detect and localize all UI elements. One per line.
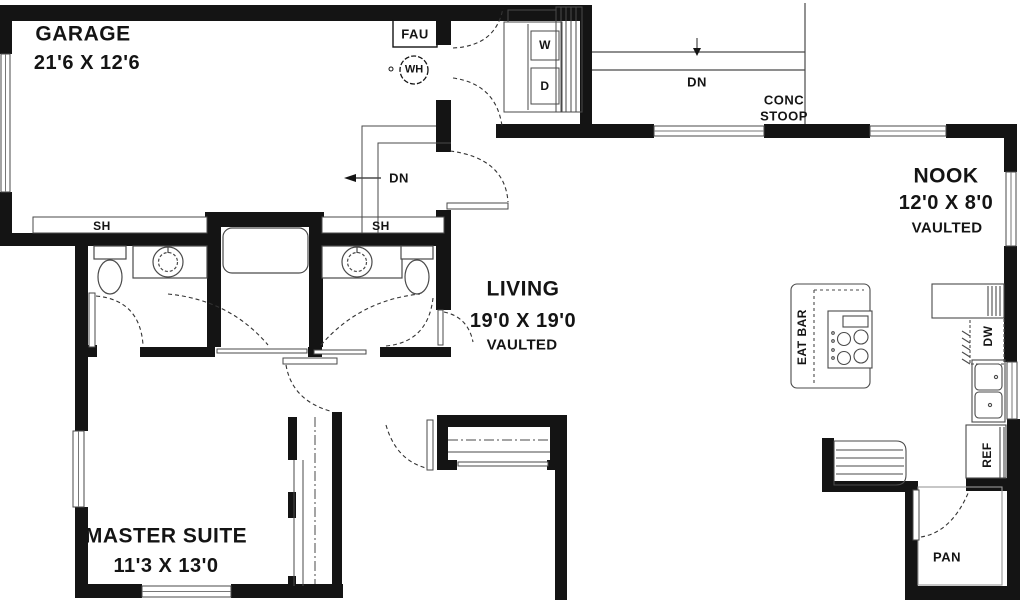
- wall-garage-east-1: [436, 5, 451, 45]
- wall-closet-master-stub1: [288, 417, 297, 460]
- wall-pantry-bottom: [905, 586, 1020, 600]
- living-dims-label: 19'0 X 19'0: [470, 311, 576, 331]
- wh-label: WH: [405, 65, 423, 76]
- eat-bar-label: EAT BAR: [796, 309, 808, 365]
- stoop-dn-label: DN: [687, 76, 707, 89]
- door-swing-bath-center-right: [321, 294, 420, 345]
- master-name-label: MASTER SUITE: [85, 526, 247, 547]
- wall-master-south-2: [231, 584, 343, 598]
- floor-plan: GARAGE 21'6 X 12'6 FAU WH DN W D DN CONC…: [0, 0, 1024, 600]
- door-leaf-garage-living: [447, 203, 508, 209]
- door-swing-bath-left: [96, 296, 143, 345]
- dryer-label: D: [540, 80, 549, 92]
- stoop-label: STOOP: [760, 110, 808, 123]
- wall-tub-left: [207, 212, 221, 347]
- pantry-interior: [918, 487, 1002, 585]
- wall-pantry-top: [966, 478, 1007, 491]
- door-swing-bath-right: [386, 298, 433, 346]
- garage-dn-arrowhead: [344, 174, 356, 182]
- wall-east-3: [1007, 419, 1020, 590]
- living-name-label: LIVING: [486, 279, 559, 300]
- kitchen: [791, 284, 1006, 585]
- door-swing-hall-living: [444, 312, 473, 342]
- door-leaf-bath-center-1: [217, 349, 307, 353]
- door-leaf-bath-center-2: [314, 350, 366, 354]
- wall-hall-4: [380, 347, 451, 357]
- door-swing-garage-hall-lower: [453, 78, 502, 126]
- wall-tub-right: [309, 212, 323, 347]
- sh-right-label: SH: [372, 220, 390, 232]
- shelf-left: [33, 217, 207, 233]
- wall-west-bath: [75, 236, 88, 347]
- wall-top: [8, 5, 592, 21]
- wall-closet-master-stub3: [288, 576, 296, 588]
- pan-label: PAN: [933, 551, 961, 564]
- living-note-label: VAULTED: [487, 338, 558, 353]
- toilet-right-bowl: [405, 260, 429, 294]
- master-dims-label: 11'3 X 13'0: [113, 556, 218, 576]
- wall-east-1: [1004, 131, 1017, 172]
- washer-label: W: [539, 39, 551, 51]
- wall-tub-top: [205, 212, 324, 227]
- toilet-left-tank: [94, 246, 126, 259]
- door-leaf-master: [283, 358, 337, 364]
- kitchen-sink-unit: [972, 360, 1005, 422]
- wall-garage-east-2: [436, 100, 451, 152]
- wall-closet-master-stub2: [288, 492, 296, 518]
- kitchen-peninsula: [834, 441, 906, 485]
- laundry-alcove: [504, 22, 562, 112]
- wall-closet2-top: [437, 415, 567, 427]
- wall-nook-north-1: [588, 124, 654, 138]
- door-swing-garage-living: [450, 151, 508, 202]
- door-swing-bed2: [386, 425, 426, 468]
- door-leaf-bed2: [427, 420, 433, 470]
- nook-note-label: VAULTED: [912, 221, 983, 236]
- fau-label: FAU: [401, 28, 429, 41]
- wall-closet-master-right: [332, 412, 342, 586]
- garage-dims-label: 21'6 X 12'6: [34, 53, 140, 73]
- wall-nook-north-2: [764, 124, 870, 138]
- garage-dn-label: DN: [389, 172, 409, 185]
- kitchen-upper-cabinet: [932, 284, 1004, 318]
- door-leaf-pantry: [913, 490, 919, 540]
- bathtub: [223, 228, 308, 273]
- wall-peninsula-stub: [822, 438, 834, 488]
- sh-left-label: SH: [93, 220, 111, 232]
- wall-hall-2: [140, 347, 215, 357]
- wall-east-2: [1004, 246, 1017, 362]
- wall-bed2-east: [555, 468, 567, 600]
- wall-master-south-1: [75, 584, 142, 598]
- door-leaf-hall-living: [438, 310, 443, 345]
- wh-gas-dot: [389, 67, 393, 71]
- basement-stairs: [556, 7, 582, 112]
- door-swing-master: [286, 365, 330, 411]
- toilet-right-tank: [401, 246, 433, 259]
- door-leaf-bath-left: [89, 293, 95, 347]
- dw-label: DW: [982, 326, 994, 347]
- ref-label: REF: [981, 442, 993, 468]
- door-swing-pantry: [921, 491, 969, 537]
- wall-garage-south-right: [322, 233, 451, 246]
- nook-dims-label: 12'0 X 8'0: [899, 193, 994, 213]
- laundry: [504, 10, 562, 112]
- walls: [0, 5, 1020, 600]
- wall-west-master-1: [75, 351, 88, 431]
- wall-garage-south-left: [8, 233, 207, 246]
- wall-closet2-stub1: [437, 460, 457, 470]
- wall-closet2-left: [437, 415, 448, 462]
- closet2-door-track: [458, 462, 548, 466]
- wall-garage-left-top: [0, 5, 12, 54]
- nook-name-label: NOOK: [914, 166, 979, 187]
- toilet-left-bowl: [98, 260, 122, 294]
- conc-label: CONC: [764, 94, 804, 107]
- wall-stair-south: [496, 124, 588, 138]
- garage-name-label: GARAGE: [35, 24, 130, 45]
